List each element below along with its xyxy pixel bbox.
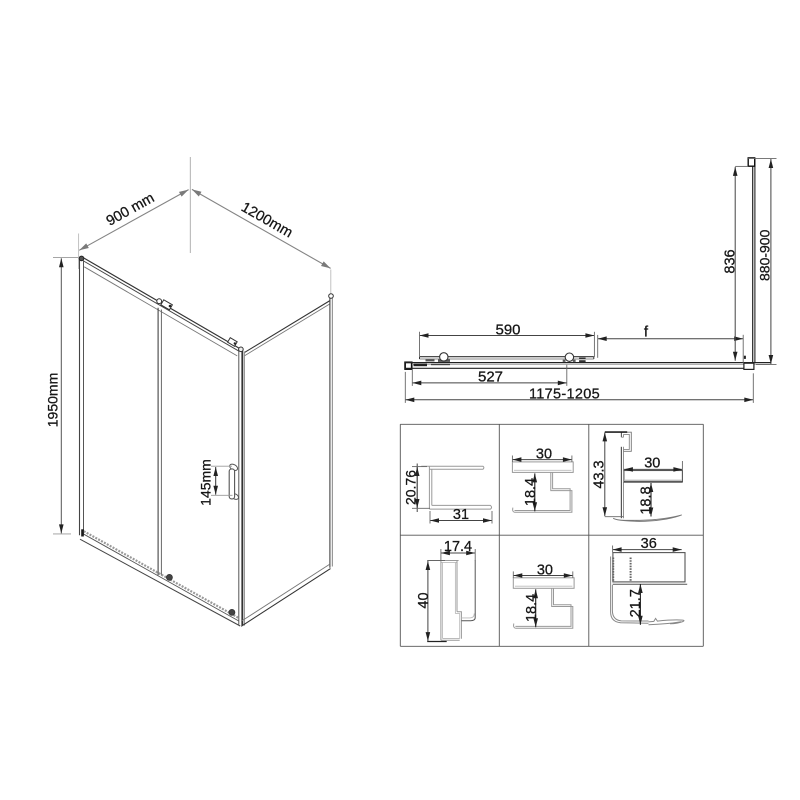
svg-text:18.4: 18.4 <box>523 478 539 506</box>
svg-text:1175-1205: 1175-1205 <box>529 387 600 403</box>
svg-text:18.4: 18.4 <box>524 594 540 622</box>
svg-text:36: 36 <box>641 536 657 552</box>
svg-text:40: 40 <box>416 592 432 608</box>
svg-text:17.4: 17.4 <box>444 539 472 555</box>
svg-text:31: 31 <box>453 507 469 523</box>
svg-text:21.7: 21.7 <box>628 589 644 617</box>
svg-text:590: 590 <box>495 321 520 338</box>
svg-text:145mm: 145mm <box>197 459 213 506</box>
svg-text:43.3: 43.3 <box>591 460 607 488</box>
svg-text:30: 30 <box>536 447 552 463</box>
svg-text:1950mm: 1950mm <box>45 373 61 427</box>
svg-text:30: 30 <box>537 563 553 579</box>
svg-text:20.76: 20.76 <box>402 470 418 505</box>
svg-text:18.8: 18.8 <box>638 486 654 514</box>
svg-text:30: 30 <box>644 456 660 472</box>
svg-text:836: 836 <box>723 249 739 273</box>
svg-text:880-900: 880-900 <box>756 229 772 281</box>
svg-text:527: 527 <box>478 369 503 386</box>
